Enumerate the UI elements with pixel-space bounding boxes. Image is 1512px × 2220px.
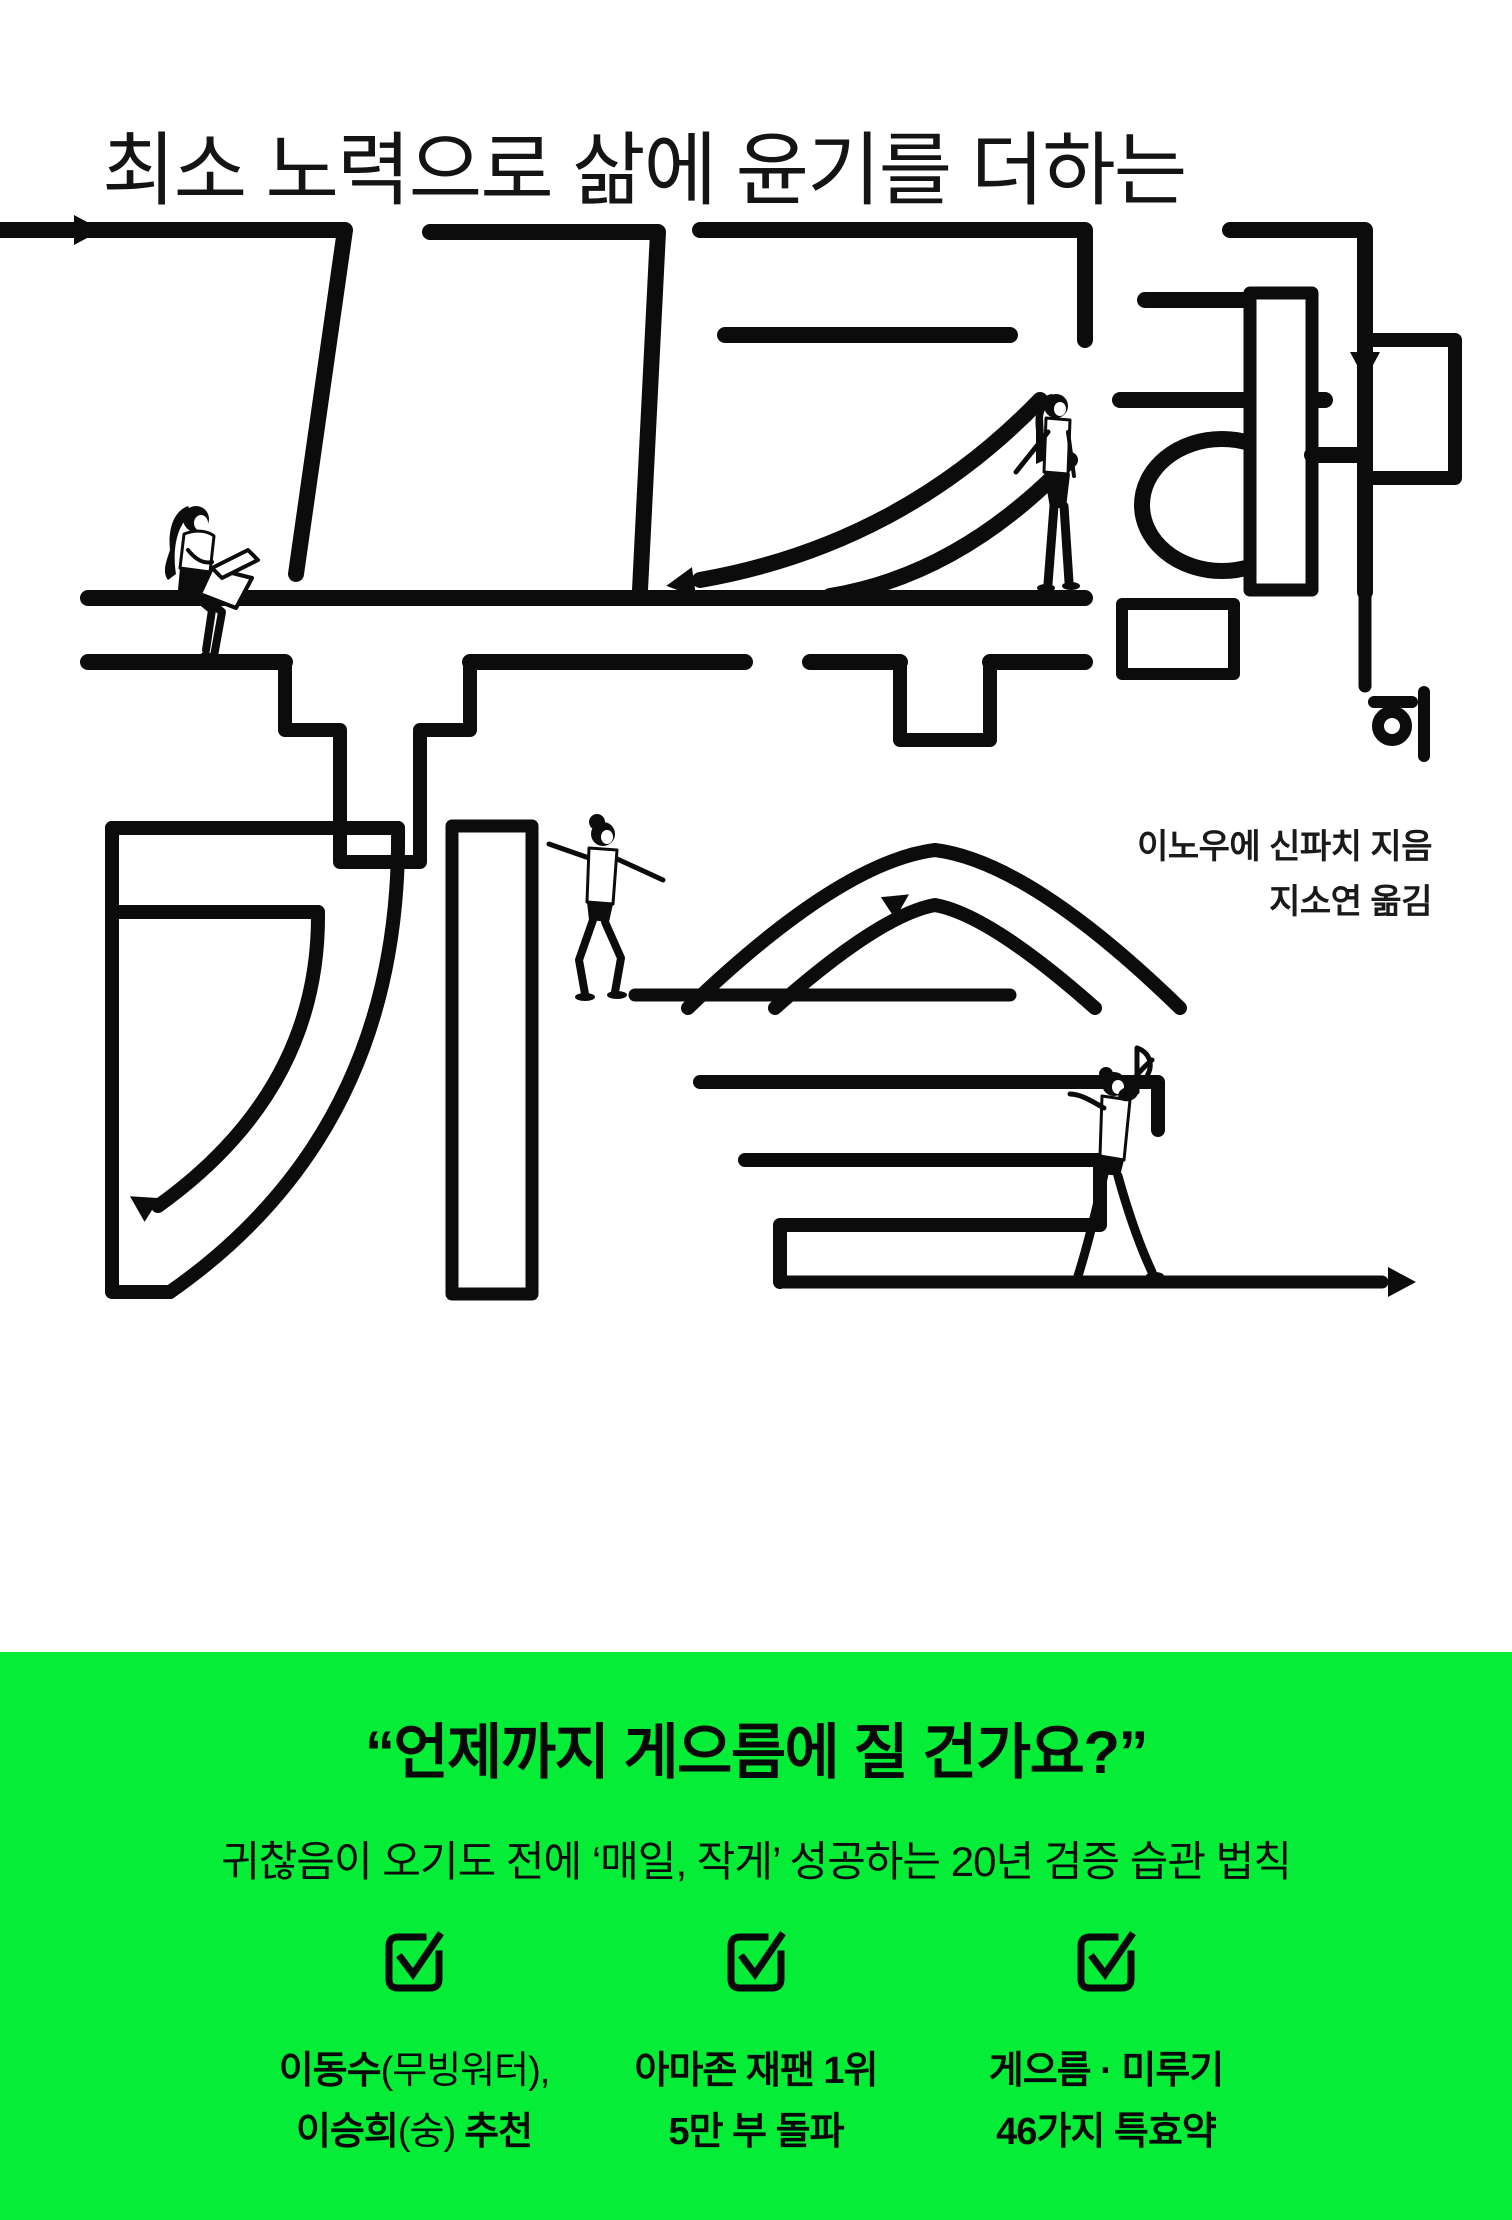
arrow-right-icon: [1388, 1267, 1416, 1297]
translator-credit: 지소연 옮김: [1137, 875, 1432, 930]
checkbox-check-icon: [381, 1930, 447, 1996]
author-credit: 이노우에 신파치 지음: [1137, 820, 1432, 875]
arrow-down-icon: [1350, 352, 1380, 380]
endorsement-text: 아마존 재팬 1위 5만 부 돌파: [586, 2041, 926, 2163]
book-cover: { "cover": { "tagline": "최소 노력으로 삶에 윤기를 …: [0, 0, 1512, 2220]
title-maze-art: [0, 0, 1512, 1512]
promo-quote: “언제까지 게으름에 질 건가요?”: [0, 1704, 1512, 1791]
title-glyph-gi: [112, 826, 532, 1294]
endorsement-column-1: 이동수(무빙워터), 이승희(숭)추천: [244, 1930, 584, 2163]
checkbox-check-icon: [1073, 1930, 1139, 1996]
title-glyph-kku: [0, 215, 1085, 862]
endorsement-text: 이동수(무빙워터), 이승희(숭)추천: [244, 2041, 584, 2163]
dancing-woman: [1067, 1060, 1164, 1284]
sitting-woman-with-laptop: [165, 506, 258, 672]
checkbox-check-icon: [723, 1930, 789, 1996]
arrow-right-icon: [74, 215, 102, 245]
endorsement-column-3: 게으름 · 미루기 46가지 특효약: [936, 1930, 1276, 2163]
arrow-down-left-icon: [123, 1184, 160, 1222]
endorsement-column-2: 아마존 재팬 1위 5만 부 돌파: [586, 1930, 926, 2163]
endorsement-text: 게으름 · 미루기 46가지 특효약: [936, 2041, 1276, 2163]
credits-block: 이노우에 신파치 지음 지소연 옮김: [1137, 820, 1432, 930]
title-glyph-ham: [1120, 230, 1455, 686]
promo-subtitle: 귀찮음이 오기도 전에 ‘매일, 작게’ 성공하는 20년 검증 습관 법칙: [0, 1828, 1512, 1889]
title-particle-ui: [1374, 692, 1424, 756]
walking-woman: [549, 814, 663, 1001]
promo-band: “언제까지 게으름에 질 건가요?” 귀찮음이 오기도 전에 ‘매일, 작게’ …: [0, 1652, 1512, 2220]
